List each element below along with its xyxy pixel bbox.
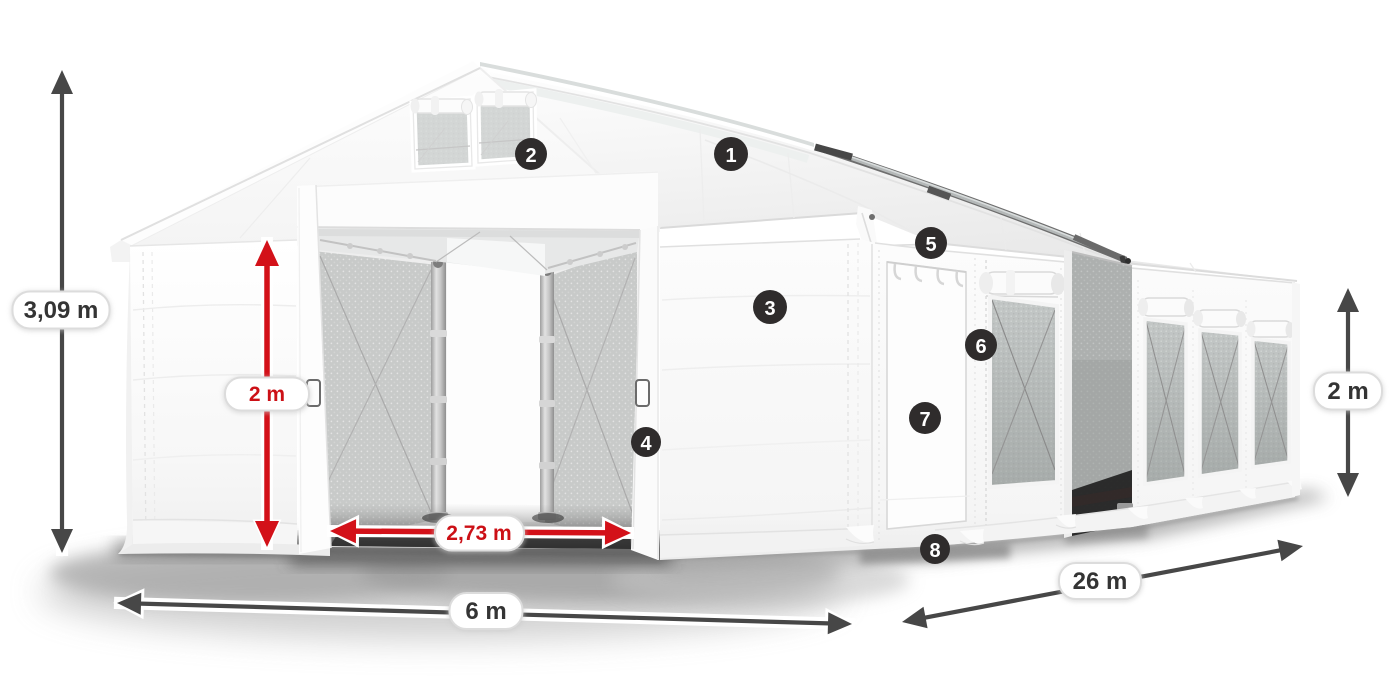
svg-text:7: 7 — [919, 409, 930, 431]
svg-text:3: 3 — [764, 298, 775, 320]
svg-text:3,09 m: 3,09 m — [24, 297, 99, 324]
svg-text:2,73 m: 2,73 m — [446, 522, 511, 545]
svg-text:2 m: 2 m — [249, 383, 285, 406]
svg-text:1: 1 — [725, 145, 736, 167]
svg-text:2 m: 2 m — [1327, 378, 1368, 405]
svg-text:5: 5 — [925, 234, 936, 256]
svg-text:2: 2 — [525, 145, 536, 167]
svg-text:6: 6 — [975, 336, 986, 358]
svg-text:6 m: 6 m — [465, 598, 506, 625]
svg-text:8: 8 — [929, 540, 940, 562]
svg-text:4: 4 — [640, 433, 652, 455]
svg-text:26 m: 26 m — [1073, 568, 1128, 595]
